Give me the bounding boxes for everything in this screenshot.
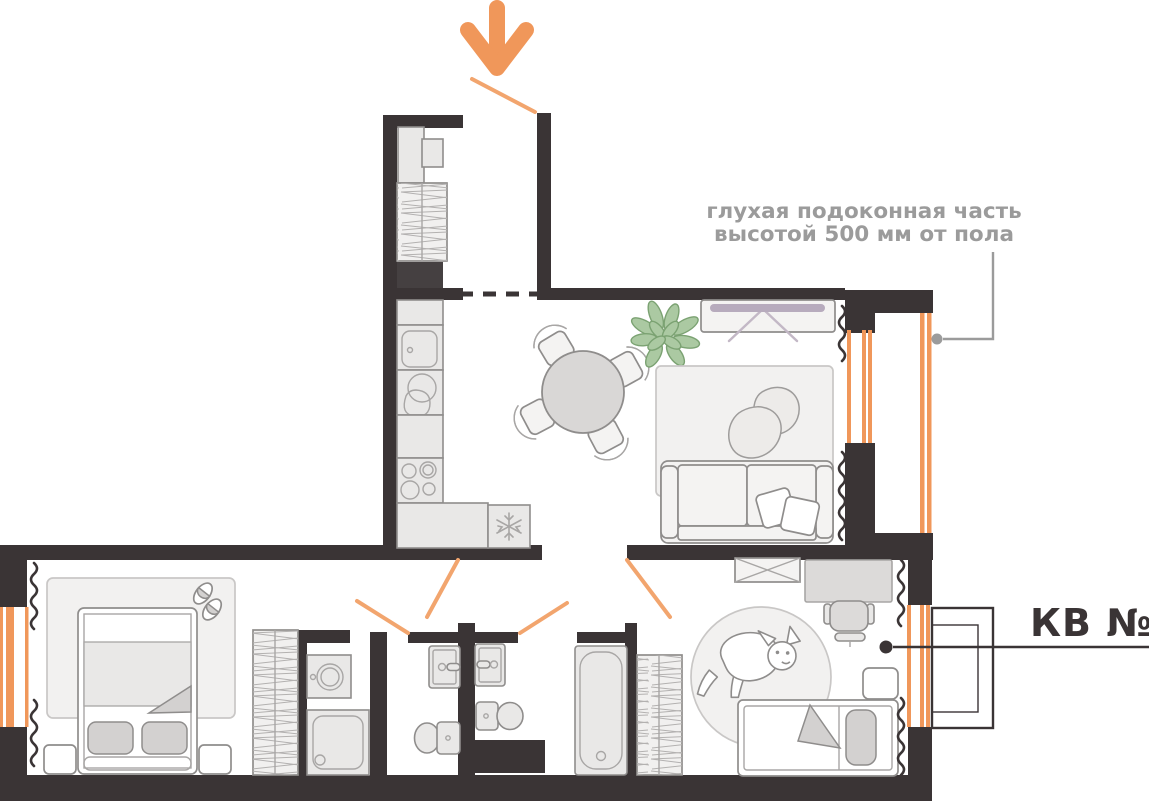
fridge <box>488 505 530 548</box>
wc-1 <box>415 646 461 754</box>
bed-pillow <box>88 722 133 754</box>
apartment-label: КВ №1 <box>1030 601 1149 645</box>
annotation-leader <box>943 252 993 339</box>
desk-chair <box>824 601 874 647</box>
living-curtain <box>839 306 845 540</box>
bedroom-curtain <box>31 563 37 766</box>
wc-2 <box>475 644 523 730</box>
plant <box>629 299 701 369</box>
apartment-annotation: КВ №1 <box>880 601 1149 654</box>
tv <box>710 304 825 312</box>
kitchen-stove <box>397 458 443 503</box>
tv-stand <box>701 300 835 341</box>
annotation-leader-dot <box>932 334 943 345</box>
toilet <box>415 722 461 754</box>
bed-pillow <box>846 710 876 765</box>
bedroom-wardrobe <box>253 630 298 775</box>
hall-door-swing <box>627 560 670 617</box>
apartment-leader-dot <box>880 641 893 654</box>
bedroom-window <box>0 607 29 727</box>
wc2-door-swing <box>520 603 567 633</box>
kids-wardrobe <box>637 655 682 775</box>
kitchen-counter-l <box>397 503 488 548</box>
bedroom <box>31 563 298 775</box>
nightstand <box>199 745 231 774</box>
hall-box <box>422 139 443 167</box>
washing-machine <box>307 655 351 698</box>
loggia-glazing <box>920 313 932 533</box>
wc1-door-swing <box>427 560 458 617</box>
kitchen-cabinet <box>397 300 443 325</box>
sofa <box>661 461 833 543</box>
kitchen-counter <box>397 415 443 458</box>
bathroom-door-swing <box>357 601 408 633</box>
washbasin <box>475 644 505 686</box>
duct-shaft <box>397 262 443 288</box>
nightstand <box>863 668 898 699</box>
kids-room <box>637 558 904 776</box>
bathtub <box>575 646 627 775</box>
dining-table <box>542 351 624 433</box>
entrance-arrow-icon <box>468 8 526 68</box>
hall-wardrobe <box>397 183 447 261</box>
floor-plan: глухая подоконная часть высотой 500 мм о… <box>0 0 1149 801</box>
kitchen-prep-unit <box>397 370 443 416</box>
plumbing-shaft <box>475 740 545 773</box>
sofa-pillow <box>780 496 820 536</box>
double-bed <box>78 608 197 774</box>
shelf <box>735 558 800 582</box>
shower-tray <box>307 710 369 775</box>
bed-pillow <box>142 722 187 754</box>
nightstand <box>44 745 76 774</box>
kids-curtain <box>898 560 904 775</box>
toilet <box>476 702 523 730</box>
desk <box>805 560 892 602</box>
annotation-line2: высотой 500 мм от пола <box>714 222 1014 247</box>
balcony-outline <box>932 608 993 728</box>
kitchen-sink <box>397 325 443 370</box>
kids-room-window <box>907 605 930 727</box>
annotation-line1: глухая подоконная часть <box>706 199 1021 224</box>
kitchen <box>397 300 530 548</box>
bathtub-room <box>575 646 627 775</box>
kids-bed <box>738 700 898 776</box>
hall-cabinet <box>398 127 424 183</box>
bathroom <box>307 655 369 775</box>
entry-corridor <box>397 127 447 261</box>
washbasin <box>429 646 460 688</box>
living-room-window <box>847 330 872 443</box>
entrance-door-swing <box>472 79 535 112</box>
